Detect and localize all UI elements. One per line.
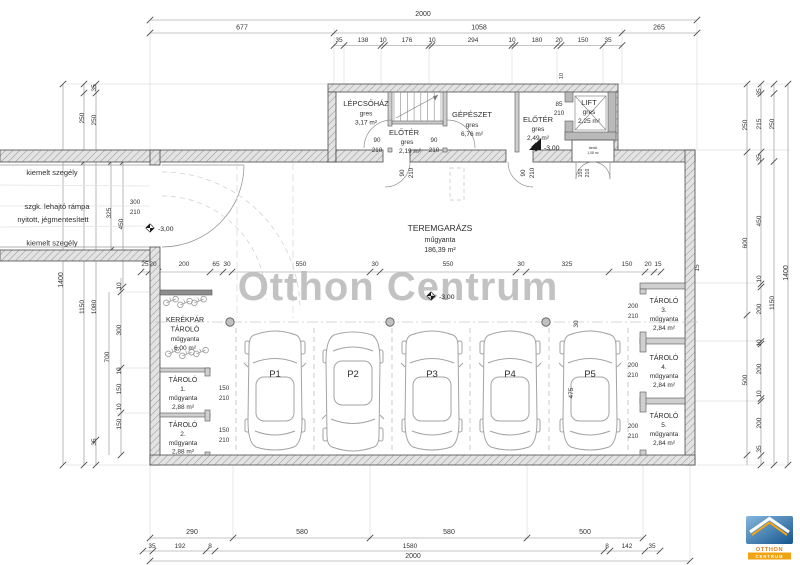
dim: 1400 bbox=[58, 272, 65, 288]
door-dim: 90 bbox=[399, 169, 406, 176]
dim: 550 bbox=[443, 261, 454, 268]
room-lift-area: 2,25 m² bbox=[578, 118, 601, 125]
dim: 294 bbox=[468, 37, 479, 44]
floor-plan-canvas: Otthon Centrum 2000 677 1058 265 35 138 … bbox=[0, 0, 800, 565]
door-dim: 300 bbox=[130, 199, 141, 206]
parking-stall-p1: P1 bbox=[269, 369, 281, 380]
door-dim: 210 bbox=[219, 437, 230, 444]
room-lift-name: LIFT bbox=[581, 98, 597, 107]
room-lift-finish: gres bbox=[583, 109, 596, 116]
dim: 10 bbox=[756, 275, 763, 283]
dim: 1400 bbox=[783, 265, 790, 281]
dim: 215 bbox=[756, 118, 763, 129]
label-curb-bottom: kiemelt szegély bbox=[26, 239, 78, 248]
dim: 550 bbox=[296, 261, 307, 268]
room-annex-area: 1,08 m² bbox=[587, 151, 599, 155]
room-storage1-area: 2,88 m² bbox=[172, 404, 195, 411]
room-storage3-num: 3. bbox=[661, 307, 667, 314]
room-stairwell-area: 3,17 m² bbox=[355, 120, 378, 127]
room-foyer1-name: ELŐTÉR bbox=[389, 128, 420, 137]
door-dim: 85 bbox=[556, 101, 563, 108]
door-arcs bbox=[162, 120, 800, 247]
door-dim: 150 bbox=[219, 385, 230, 392]
room-storage3-finish: műgyanta bbox=[650, 316, 679, 323]
label-ramp-line1: szgk. lehajtó rámpa bbox=[24, 202, 90, 211]
level-foyer: -3,00 bbox=[544, 145, 560, 152]
dim: 192 bbox=[175, 543, 186, 550]
room-storage1-finish: műgyanta bbox=[169, 395, 198, 402]
label-ramp-line2: nyitott, jégmentesített bbox=[17, 215, 89, 224]
dim: 10 bbox=[508, 37, 516, 44]
room-storage5-num: 5. bbox=[661, 422, 667, 429]
dim: 10 bbox=[756, 390, 763, 398]
door-dim: 210 bbox=[628, 372, 639, 379]
room-storage2-name: TÁROLÓ bbox=[169, 420, 198, 429]
stair-flight bbox=[394, 92, 441, 121]
dim: 25 bbox=[141, 261, 149, 268]
dim: 35 bbox=[91, 84, 98, 92]
dim: 150 bbox=[116, 418, 123, 429]
dim: 250 bbox=[742, 119, 749, 130]
dim: 35 bbox=[91, 438, 98, 446]
dim: 150 bbox=[116, 383, 123, 394]
dim: 35 bbox=[756, 154, 763, 162]
parked-cars bbox=[244, 331, 621, 451]
dim: 35 bbox=[756, 88, 763, 96]
door-dim: 210 bbox=[554, 110, 565, 117]
dim: 450 bbox=[756, 215, 763, 226]
room-stairwell-name: LÉPCSŐHÁZ bbox=[343, 99, 389, 108]
room-storage1-name: TÁROLÓ bbox=[169, 375, 198, 384]
dim: 138 bbox=[358, 37, 369, 44]
otthon-centrum-logo: OTTHON CENTRUM bbox=[744, 513, 795, 561]
door-dim: 210 bbox=[429, 147, 440, 154]
door-dim: 150 bbox=[578, 169, 584, 178]
door-dim: 210 bbox=[219, 395, 230, 402]
room-storage5-area: 2,84 m² bbox=[653, 440, 676, 447]
dim: 10 bbox=[379, 37, 387, 44]
dim: 10 bbox=[116, 282, 123, 290]
dim: 150 bbox=[578, 37, 589, 44]
dim: 200 bbox=[756, 303, 763, 314]
dim: 325 bbox=[562, 261, 573, 268]
dim: 10 bbox=[116, 403, 123, 411]
dim: 10 bbox=[428, 37, 436, 44]
room-bike-finish: műgyanta bbox=[171, 336, 200, 343]
dim-top-total: 2000 bbox=[415, 11, 431, 18]
dim: 1150 bbox=[79, 300, 86, 314]
dim: 176 bbox=[402, 37, 413, 44]
dim: 250 bbox=[91, 114, 98, 125]
dim: 580 bbox=[443, 529, 455, 536]
door-dim: 200 bbox=[628, 303, 639, 310]
room-storage3-area: 2,84 m² bbox=[653, 325, 676, 332]
door-dim: 90 bbox=[374, 137, 381, 144]
dim: 300 bbox=[116, 324, 123, 335]
door-dim: 90 bbox=[520, 169, 527, 176]
door-dim: 210 bbox=[529, 167, 536, 178]
dim: 10 bbox=[116, 367, 123, 375]
room-mechanical-name: GÉPÉSZET bbox=[452, 110, 492, 119]
room-storage2-num: 2. bbox=[180, 431, 186, 438]
room-garage-name: TEREMGARÁZS bbox=[408, 223, 473, 233]
dim: 500 bbox=[742, 374, 749, 385]
dim: 475 bbox=[568, 387, 575, 398]
dim: 600 bbox=[742, 237, 749, 248]
level-ramp: -3,00 bbox=[158, 226, 174, 233]
room-foyer1-area: 2,19 m² bbox=[399, 148, 422, 155]
dim: 250 bbox=[79, 112, 86, 123]
dim: 142 bbox=[622, 543, 633, 550]
dim: 30 bbox=[517, 261, 525, 268]
dim: 290 bbox=[186, 529, 198, 536]
dim: 35 bbox=[756, 445, 763, 453]
parking-stall-p2: P2 bbox=[347, 369, 359, 380]
dim: 180 bbox=[532, 37, 543, 44]
dim: 200 bbox=[756, 417, 763, 428]
room-mechanical-area: 6,76 m² bbox=[461, 131, 484, 138]
dim: 1058 bbox=[471, 25, 487, 32]
room-bike-name1: KERÉKPÁR bbox=[166, 315, 204, 324]
dim: 35 bbox=[148, 543, 156, 550]
room-storage1-num: 1. bbox=[180, 386, 186, 393]
door-dim: 200 bbox=[628, 423, 639, 430]
dim: 35 bbox=[335, 37, 343, 44]
dim: 20 bbox=[644, 261, 652, 268]
parking-stall-p5: P5 bbox=[584, 369, 596, 380]
parking-stall-p4: P4 bbox=[504, 369, 516, 380]
dim: 30 bbox=[371, 261, 379, 268]
label-curb-top: kiemelt szegély bbox=[26, 168, 78, 177]
room-bike-name2: TÁROLÓ bbox=[171, 325, 200, 334]
dim: 1150 bbox=[769, 296, 776, 310]
door-dim: 210 bbox=[628, 433, 639, 440]
dim: 10 bbox=[756, 339, 763, 347]
dim: 580 bbox=[296, 529, 308, 536]
door-dim: 200 bbox=[628, 362, 639, 369]
room-garage-area: 186,39 m² bbox=[424, 247, 456, 254]
room-stairwell-finish: gres bbox=[360, 111, 373, 118]
dim: 700 bbox=[104, 351, 111, 362]
door-dim: 210 bbox=[130, 209, 141, 216]
room-storage4-area: 2,84 m² bbox=[653, 382, 676, 389]
door-dim: 210 bbox=[628, 313, 639, 320]
dim: 8 bbox=[605, 543, 609, 550]
room-storage4-num: 4. bbox=[661, 364, 667, 371]
dim: 35 bbox=[604, 37, 612, 44]
room-storage2-finish: műgyanta bbox=[169, 440, 198, 447]
door-dim: 90 bbox=[431, 137, 438, 144]
dim: 10 bbox=[559, 73, 565, 79]
dim: 35 bbox=[648, 543, 656, 550]
dim: 65 bbox=[212, 261, 220, 268]
dim: 500 bbox=[579, 529, 591, 536]
room-storage3-name: TÁROLÓ bbox=[650, 296, 679, 305]
room-mechanical-finish: gres bbox=[466, 122, 479, 129]
door-dim: 210 bbox=[585, 169, 591, 178]
logo-name: OTTHON bbox=[756, 547, 783, 553]
door-dim: 210 bbox=[408, 167, 415, 178]
dim: 20 bbox=[149, 261, 157, 268]
watermark-text: Otthon Centrum bbox=[238, 265, 559, 309]
door-dim: 150 bbox=[219, 427, 230, 434]
room-foyer1-finish: gres bbox=[401, 139, 414, 146]
dim-bottom-total: 2000 bbox=[405, 553, 421, 560]
dim: 325 bbox=[106, 207, 113, 218]
dim: 30 bbox=[223, 261, 231, 268]
room-foyer2-area: 2,49 m² bbox=[527, 135, 550, 142]
door-dim: 210 bbox=[372, 147, 383, 154]
room-storage4-finish: műgyanta bbox=[650, 373, 679, 380]
dim: 150 bbox=[622, 261, 633, 268]
room-bike-area: 6,00 m² bbox=[174, 345, 197, 352]
room-annex-name: tároló bbox=[589, 146, 598, 150]
logo-sub: CENTRUM bbox=[756, 554, 784, 559]
dim: 15 bbox=[654, 261, 662, 268]
room-storage2-area: 2,88 m² bbox=[172, 449, 195, 456]
dim: 450 bbox=[118, 218, 125, 229]
dim: 30 bbox=[573, 320, 580, 328]
dim: 250 bbox=[769, 118, 776, 129]
room-storage5-finish: műgyanta bbox=[650, 431, 679, 438]
dim: 200 bbox=[179, 261, 190, 268]
dim: 8 bbox=[208, 543, 212, 550]
room-storage5-name: TÁROLÓ bbox=[650, 411, 679, 420]
room-foyer2-name: ELŐTÉR bbox=[523, 115, 554, 124]
dim: 265 bbox=[653, 25, 665, 32]
room-garage-finish: műgyanta bbox=[425, 237, 456, 244]
room-foyer2-finish: gres bbox=[532, 126, 545, 133]
dim: 15 bbox=[694, 264, 701, 272]
parking-stall-p3: P3 bbox=[426, 369, 438, 380]
dim: 1580 bbox=[403, 543, 418, 550]
room-storage4-name: TÁROLÓ bbox=[650, 353, 679, 362]
dim: 1080 bbox=[91, 299, 98, 314]
dim: 20 bbox=[555, 37, 563, 44]
dim: 677 bbox=[236, 25, 248, 32]
dim: 200 bbox=[756, 363, 763, 374]
level-garage: -3,00 bbox=[439, 294, 455, 301]
